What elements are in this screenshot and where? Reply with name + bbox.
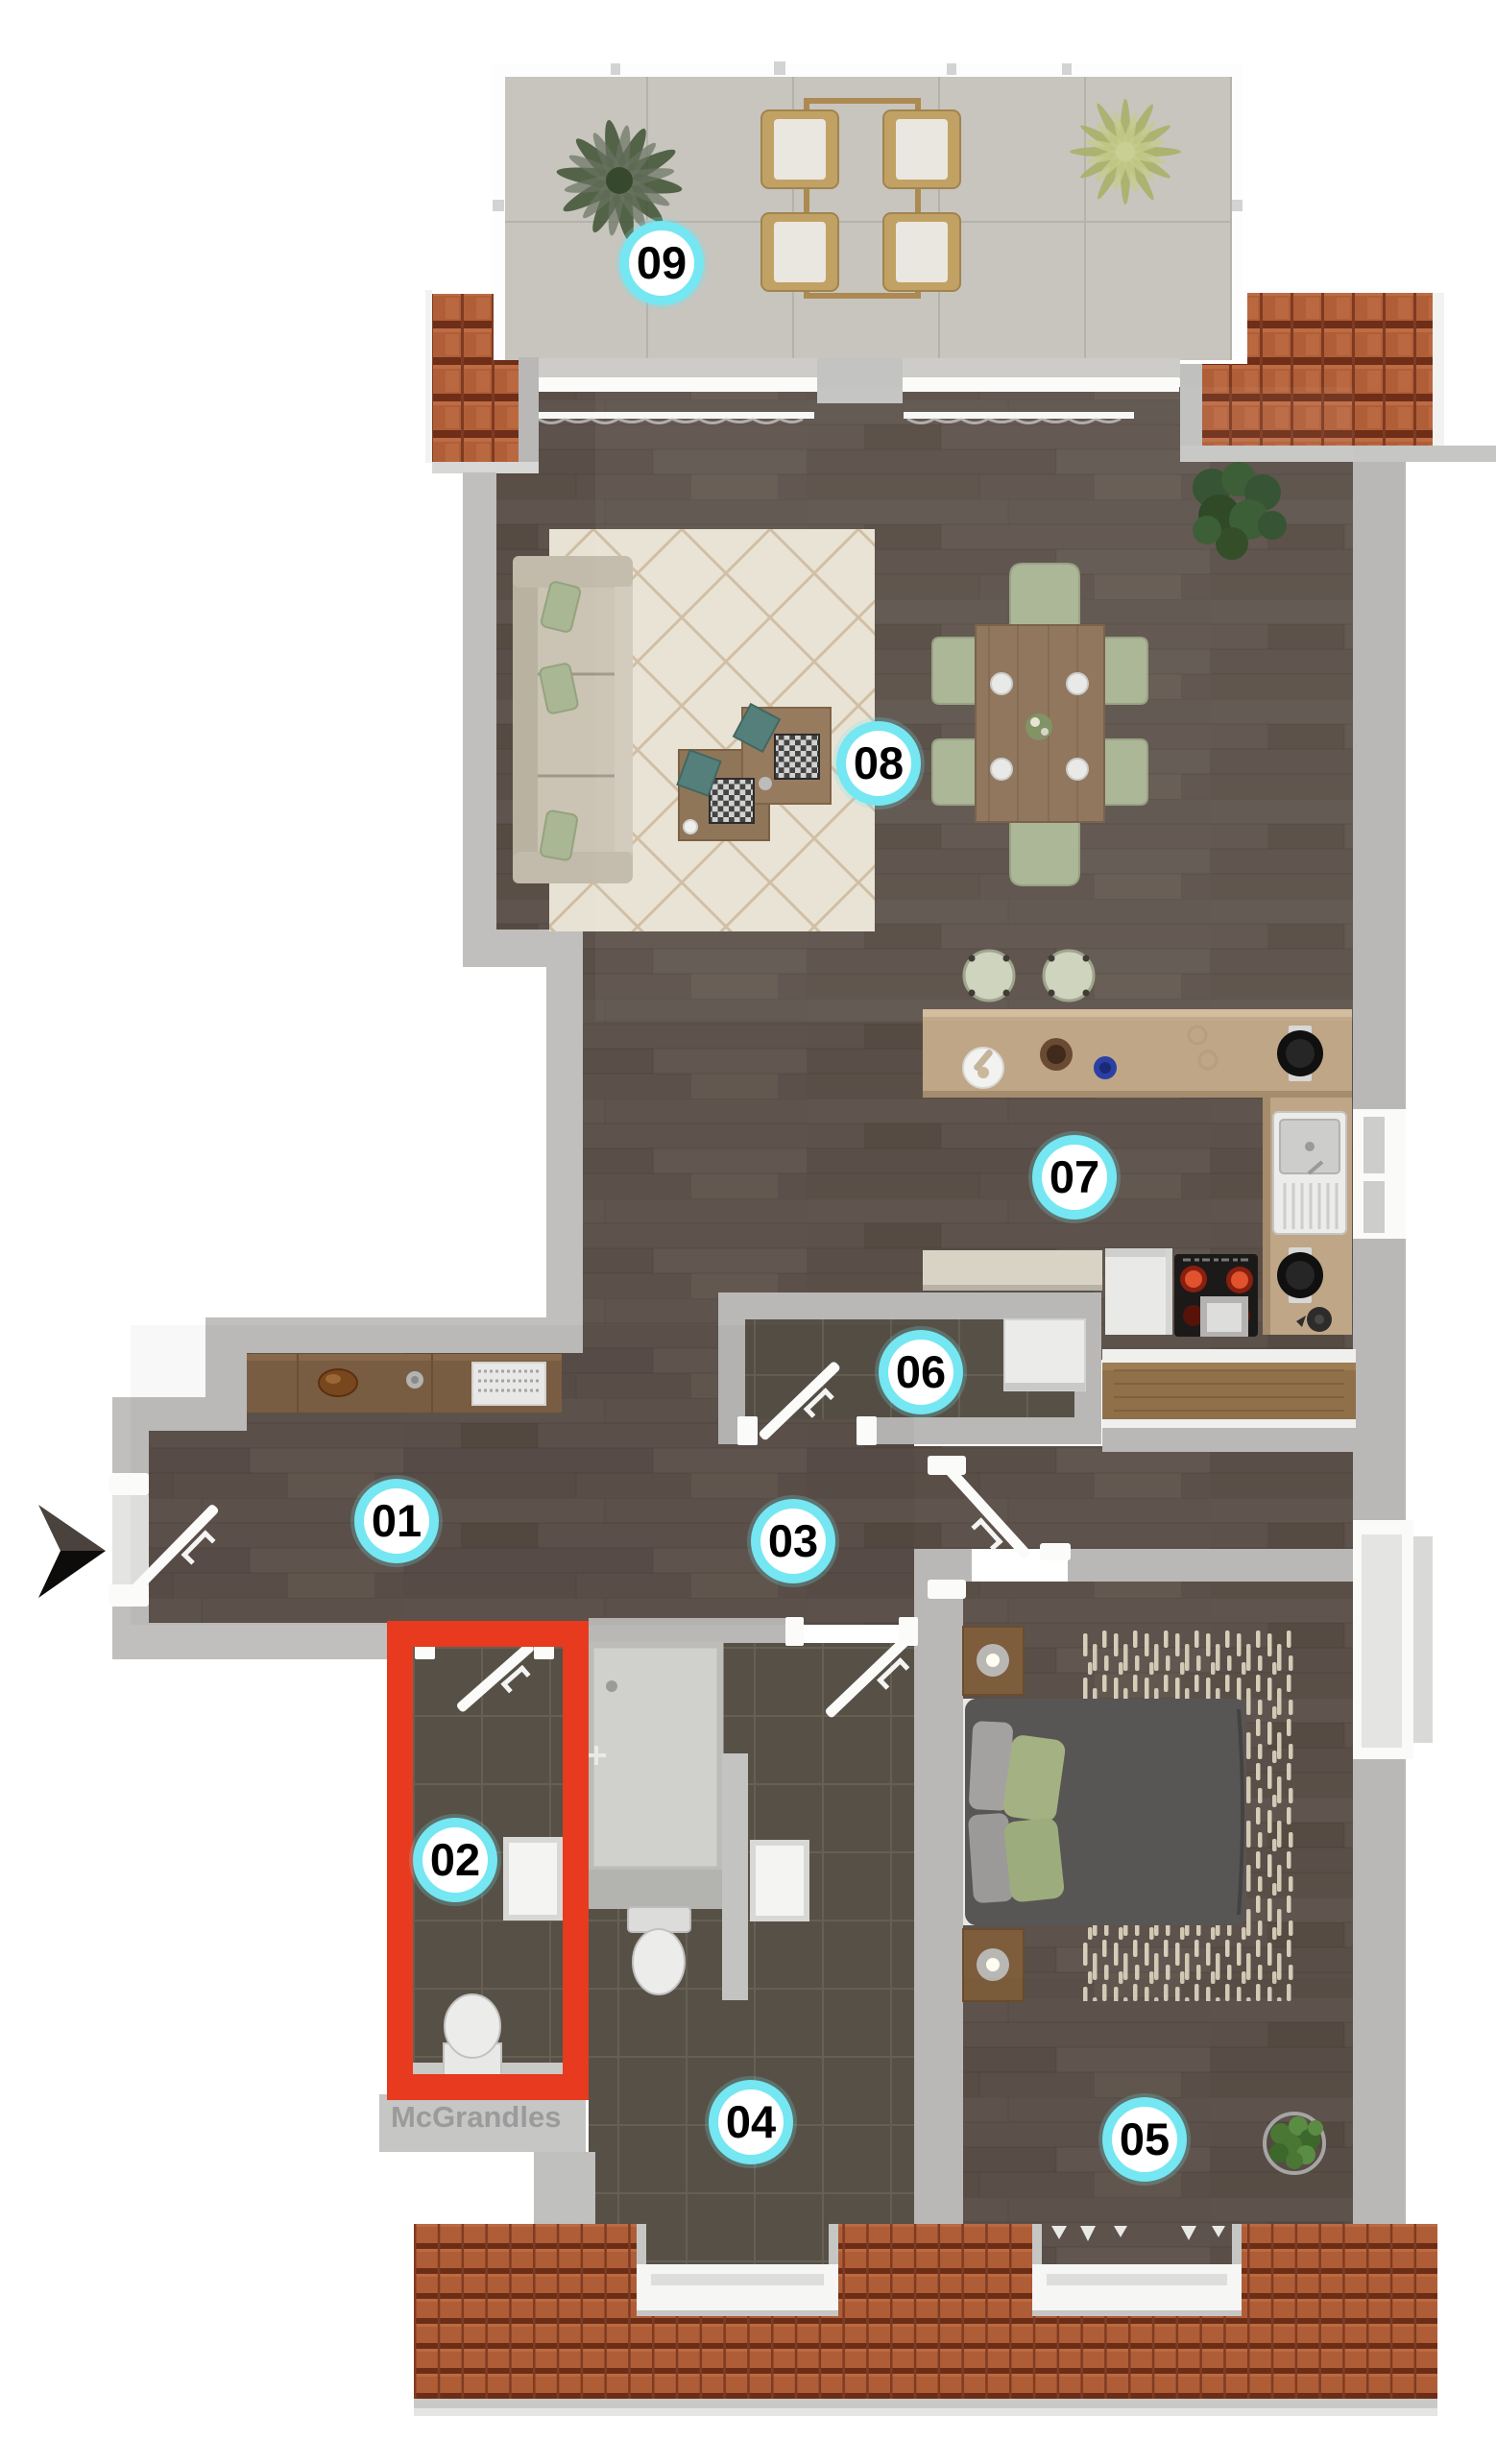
svg-text:08: 08 bbox=[854, 737, 904, 788]
svg-text:03: 03 bbox=[768, 1515, 818, 1566]
svg-text:02: 02 bbox=[430, 1834, 480, 1885]
svg-text:09: 09 bbox=[637, 237, 687, 288]
svg-text:01: 01 bbox=[372, 1495, 422, 1546]
svg-text:McGrandles: McGrandles bbox=[391, 2100, 561, 2134]
svg-text:04: 04 bbox=[726, 2096, 776, 2147]
svg-text:05: 05 bbox=[1120, 2114, 1170, 2164]
svg-text:07: 07 bbox=[1050, 1151, 1099, 1202]
svg-text:06: 06 bbox=[896, 1346, 946, 1397]
